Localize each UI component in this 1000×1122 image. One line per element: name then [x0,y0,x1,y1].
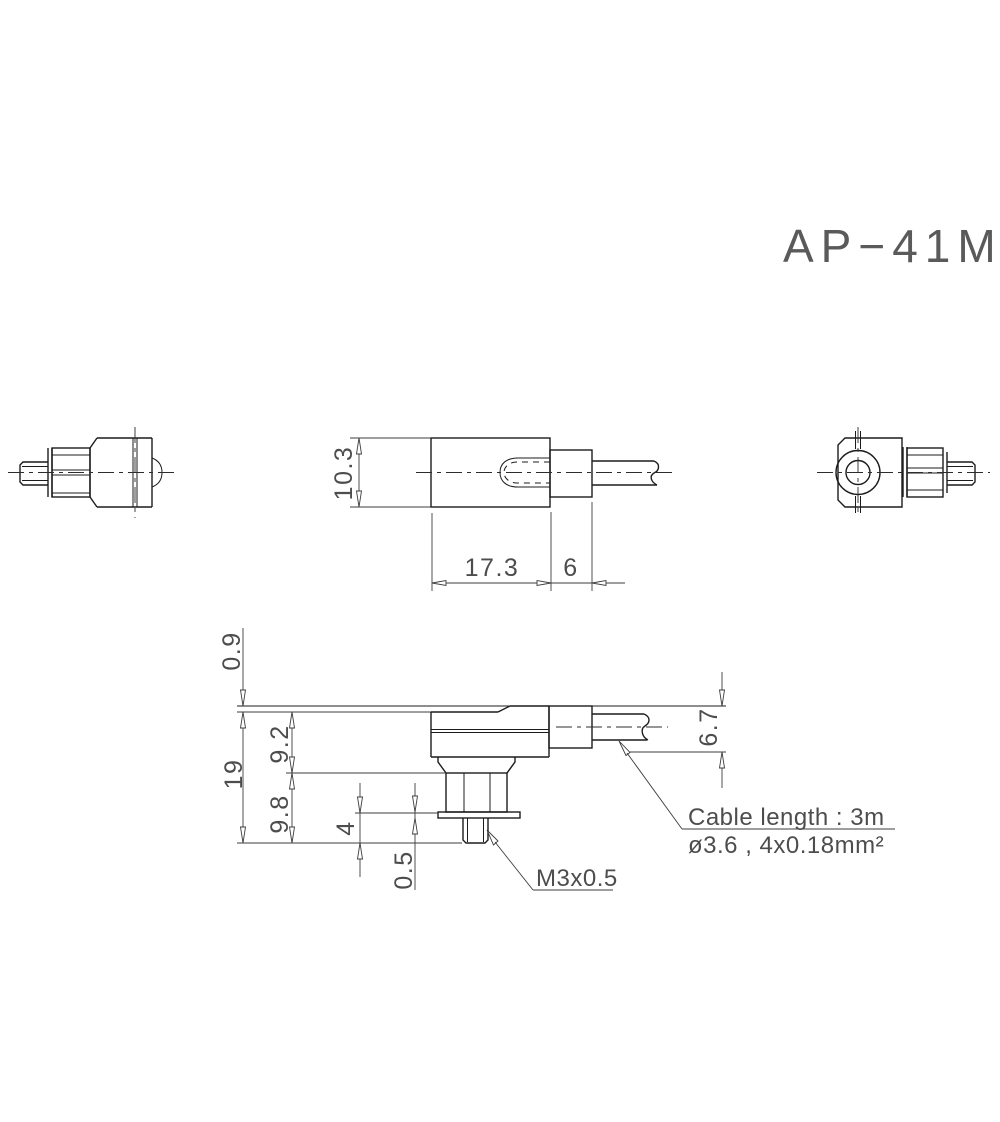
dim-upper-group: 9.2 [266,712,295,773]
washer [438,812,520,818]
dim-lower: 9.8 [266,794,294,833]
drawing-title: AP−41M [783,220,1000,272]
dim-cable-offset: 6.7 [695,707,723,746]
dim-stud-length-group: 4 [332,783,363,877]
thread-stud [463,818,488,843]
dim-upper: 9.2 [266,724,294,763]
dim-overall-group: 19 [220,712,248,843]
thread-stud [20,462,48,485]
hex-nut [446,773,507,812]
dim-offset-group: 0.9 [218,628,246,706]
cable [592,461,659,485]
end-view-right [817,427,990,517]
dim-side-body-length: 17.3 [465,554,520,582]
dim-stud-length: 4 [332,820,360,835]
technical-drawing-sheet: AP−41M [0,0,1000,1122]
dim-offset: 0.9 [218,631,246,670]
mounted-side-view: 0.9 19 9.2 9.8 4 [218,628,895,892]
cable-break [651,461,658,485]
leader-arrow [619,741,630,756]
label-thread-spec: M3x0.5 [536,865,618,892]
dim-overall: 19 [220,759,248,790]
cable-annotation: Cable length : 3m ø3.6 , 4x0.18mm² [619,741,895,859]
label-cable-spec: ø3.6 , 4x0.18mm² [688,832,884,859]
dim-side-height-group: 10.3 [330,438,431,507]
thread-annotation: M3x0.5 [487,830,618,892]
label-cable-length: Cable length : 3m [688,804,885,831]
dim-washer-thickness: 0.5 [390,850,418,889]
dim-side-bushing-length: 6 [563,554,578,582]
drawing-svg: AP−41M [0,0,1000,1122]
cable-bushing [550,450,592,497]
sensor-body [431,706,549,757]
side-view: 10.3 17.3 6 [330,438,676,591]
neck [507,757,515,773]
dim-side-lengths-group: 17.3 6 [432,502,625,591]
dim-cable-offset-group: 6.7 [695,672,725,788]
neck [438,757,446,773]
dim-washer-thickness-group: 0.5 [390,783,418,890]
dim-side-height: 10.3 [330,446,358,501]
end-view-left [8,427,176,518]
dim-lower-group: 9.8 [266,773,295,843]
thread-stud [947,462,975,485]
